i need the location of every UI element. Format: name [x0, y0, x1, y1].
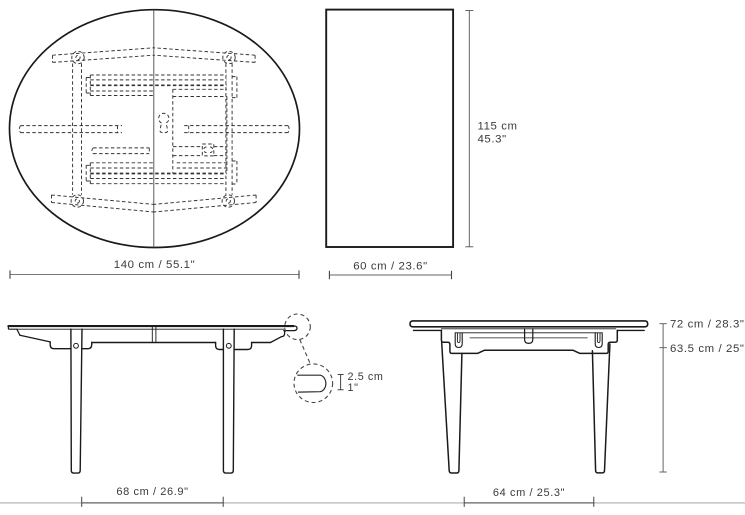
- svg-text:64 cm / 25.3": 64 cm / 25.3": [493, 487, 565, 499]
- svg-text:63.5 cm / 25": 63.5 cm / 25": [670, 343, 745, 355]
- svg-text:1": 1": [348, 382, 359, 394]
- svg-text:2.5 cm: 2.5 cm: [348, 371, 384, 383]
- svg-text:115 cm: 115 cm: [478, 120, 518, 132]
- svg-text:68 cm / 26.9": 68 cm / 26.9": [116, 486, 188, 498]
- svg-text:60 cm / 23.6": 60 cm / 23.6": [353, 261, 428, 273]
- svg-text:140 cm / 55.1": 140 cm / 55.1": [114, 259, 195, 271]
- svg-text:72 cm / 28.3": 72 cm / 28.3": [670, 318, 745, 330]
- svg-text:45.3": 45.3": [478, 134, 507, 146]
